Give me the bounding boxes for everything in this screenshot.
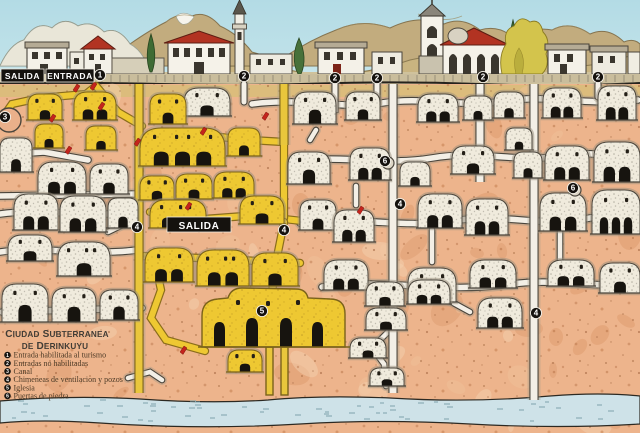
svg-text:SALIDA: SALIDA — [5, 71, 40, 81]
svg-text:2: 2 — [333, 74, 338, 83]
svg-text:CIUDAD SUBTERRANEA: CIUDAD SUBTERRANEA — [5, 329, 109, 340]
svg-text:6: 6 — [6, 394, 9, 400]
svg-text:Puertas de piedra: Puertas de piedra — [14, 392, 70, 401]
svg-text:2: 2 — [596, 73, 601, 82]
svg-text:3: 3 — [3, 113, 8, 122]
svg-text:1: 1 — [98, 71, 103, 80]
svg-text:4: 4 — [135, 223, 140, 232]
svg-text:4: 4 — [282, 226, 287, 235]
svg-text:6: 6 — [383, 157, 388, 166]
svg-text:ENTRADA: ENTRADA — [47, 71, 93, 81]
svg-text:3: 3 — [6, 369, 9, 375]
svg-text:4: 4 — [6, 377, 9, 383]
svg-text:1: 1 — [6, 353, 9, 359]
svg-text:SALIDA: SALIDA — [179, 221, 220, 232]
svg-text:2: 2 — [375, 74, 380, 83]
svg-text:2: 2 — [6, 361, 9, 367]
svg-text:2: 2 — [481, 73, 486, 82]
svg-text:5: 5 — [260, 307, 265, 316]
svg-text:4: 4 — [534, 309, 539, 318]
svg-text:5: 5 — [6, 386, 9, 392]
svg-text:2: 2 — [242, 72, 247, 81]
svg-text:6: 6 — [571, 184, 576, 193]
svg-text:4: 4 — [398, 200, 403, 209]
